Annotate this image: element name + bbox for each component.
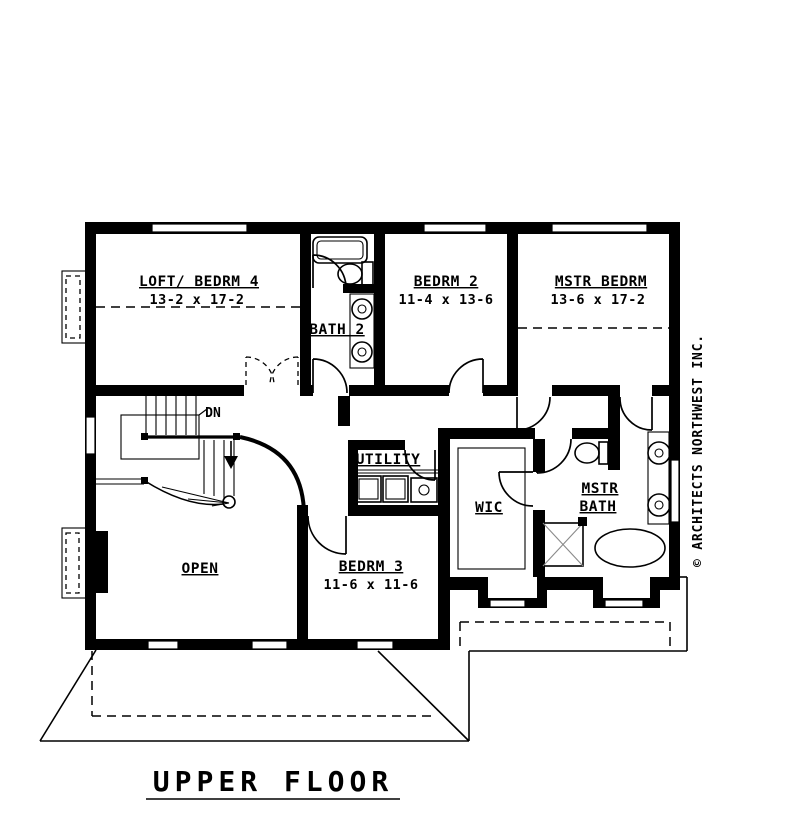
floor-title: UPPER FLOOR xyxy=(153,765,393,798)
wall-segment xyxy=(483,385,517,396)
window-left-wall xyxy=(86,417,95,454)
bath2-sink-2 xyxy=(352,342,372,362)
window-mstr-bath xyxy=(671,460,679,522)
window-loft xyxy=(152,224,247,232)
wall-bedrm2-mstr xyxy=(507,233,518,396)
wall-segment xyxy=(450,577,478,590)
bath2-toilet-tank xyxy=(362,262,373,286)
window-tub-niche xyxy=(605,600,643,607)
dryer xyxy=(383,476,408,502)
bath2-entry-door xyxy=(313,359,347,393)
loft-french-doors xyxy=(246,357,298,385)
wall-hall-bottom-right xyxy=(572,428,608,439)
labels: LOFT/ BEDRM 4 13-2 x 17-2 BATH 2 BEDRM 2… xyxy=(139,274,706,798)
window-wic-niche xyxy=(490,600,525,607)
room-label-bedrm3: BEDRM 3 xyxy=(339,559,404,575)
room-dims-loft-bedrm4: 13-2 x 17-2 xyxy=(150,292,245,308)
laundry-sink xyxy=(411,478,437,502)
wall-segment xyxy=(385,385,449,396)
laundry-sink-basin xyxy=(419,485,429,495)
wall-wic-bath-upper xyxy=(533,439,545,472)
room-label-mstr-bedrm: MSTR BEDRM xyxy=(555,274,647,290)
newel-post xyxy=(233,433,240,440)
room-label-bath2: BATH 2 xyxy=(309,322,364,338)
copyright-vertical: © ARCHITECTS NORTHWEST INC. xyxy=(691,334,706,567)
window-mstr-bedrm xyxy=(552,224,647,232)
wic-door xyxy=(499,472,533,506)
roof-hip-right xyxy=(378,651,469,741)
mstr-bedrm-bath-door xyxy=(620,397,652,430)
wall-segment xyxy=(349,385,374,396)
curved-hall-wall xyxy=(240,437,304,512)
mstr-toilet-tank xyxy=(599,442,608,464)
room-label-bedrm2: BEDRM 2 xyxy=(414,274,479,290)
room-label-open: OPEN xyxy=(182,561,219,577)
roof-hip-left xyxy=(40,650,96,741)
room-label-mstr-bath-2: BATH xyxy=(580,499,617,515)
bath2-sink-1-drain xyxy=(358,305,366,313)
mstr-bathtub xyxy=(595,529,665,567)
washer xyxy=(356,476,381,502)
bedrm2-door xyxy=(449,359,483,393)
mstr-toilet-bowl xyxy=(575,443,599,463)
wall-open-bedrm3 xyxy=(297,505,308,650)
stairs xyxy=(96,396,304,512)
stair-treads-lower xyxy=(204,440,234,498)
left-bay-upper xyxy=(62,271,88,343)
room-label-loft-bedrm4: LOFT/ BEDRM 4 xyxy=(139,274,259,290)
wall-bath2-bedrm2 xyxy=(374,233,385,396)
wall-wic-left xyxy=(438,428,450,650)
dryer-inner xyxy=(386,479,405,499)
room-label-mstr-bath-1: MSTR xyxy=(582,481,619,497)
room-label-utility: UTILITY xyxy=(356,452,421,468)
bath2-sink-2-drain xyxy=(358,348,366,356)
bath2-compartment-door xyxy=(313,255,346,288)
wall-loft-bottom xyxy=(96,385,244,396)
mstr-sink-2-drain xyxy=(655,501,663,509)
wall-bath2-left xyxy=(300,233,311,396)
wall-segment xyxy=(552,385,610,396)
room-dims-bedrm2: 11-4 x 13-6 xyxy=(399,292,494,308)
wall-stub-masterbath xyxy=(608,385,620,470)
wall-segment xyxy=(547,577,593,590)
wall-hall-stub xyxy=(338,396,350,426)
bedrm3-door xyxy=(308,516,346,554)
wall-segment xyxy=(660,577,680,590)
window-open-2 xyxy=(252,641,287,649)
floor-plan-drawing: LOFT/ BEDRM 4 13-2 x 17-2 BATH 2 BEDRM 2… xyxy=(0,0,800,822)
mstr-bedrm-door xyxy=(517,397,550,430)
wall-segment xyxy=(652,385,680,396)
window-open-1 xyxy=(148,641,178,649)
wall-segment xyxy=(300,385,313,396)
window-bedrm2 xyxy=(424,224,486,232)
roof-outline xyxy=(40,577,687,741)
room-label-wic: WIC xyxy=(475,500,503,516)
room-dims-bedrm3: 11-6 x 11-6 xyxy=(324,577,419,593)
washer-inner xyxy=(359,479,378,499)
floor-plan-page: LOFT/ BEDRM 4 13-2 x 17-2 BATH 2 BEDRM 2… xyxy=(0,0,800,822)
mstr-sink-1 xyxy=(648,442,670,464)
window-bedrm3 xyxy=(357,641,393,649)
bath2-toilet-bowl xyxy=(338,264,362,284)
newel-post xyxy=(141,433,148,440)
stairs-dn-label: DN xyxy=(205,406,221,421)
bath2-sink-1 xyxy=(352,299,372,319)
newel-post xyxy=(141,477,148,484)
mstr-sink-2 xyxy=(648,494,670,516)
stair-direction-arrow xyxy=(224,441,238,469)
mstr-sink-1-drain xyxy=(655,449,663,457)
room-dims-mstr-bedrm: 13-6 x 17-2 xyxy=(551,292,646,308)
mstr-shower xyxy=(543,517,587,566)
wall-utility-bottom xyxy=(348,505,450,516)
wall-right xyxy=(669,222,680,577)
